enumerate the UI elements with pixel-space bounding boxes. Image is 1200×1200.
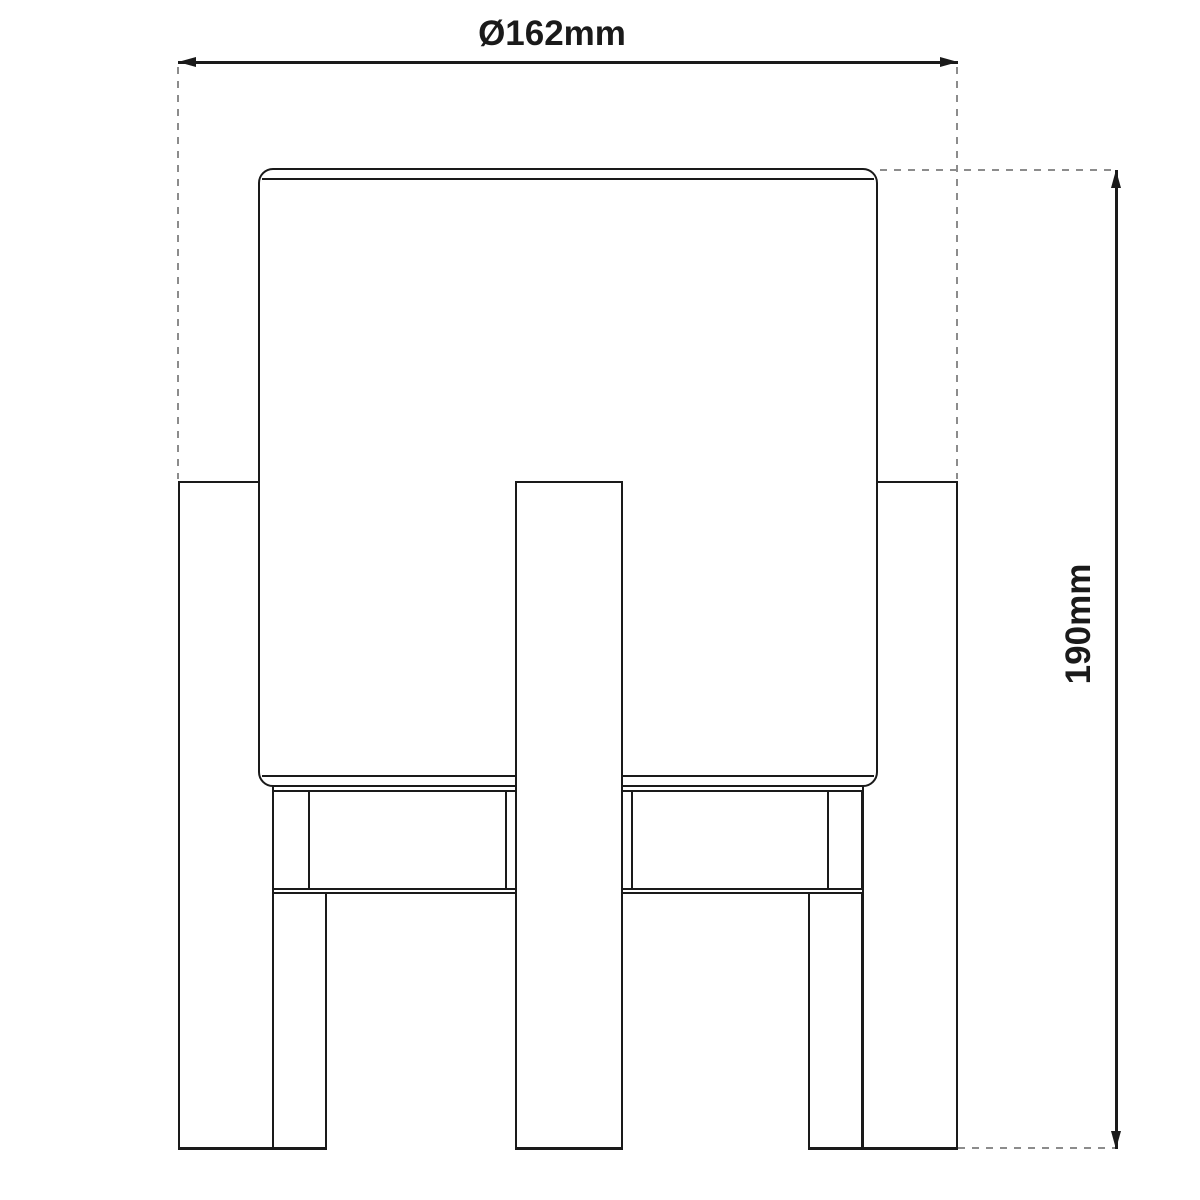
height-dimension-line: [1115, 170, 1118, 1149]
front-right-leg: [808, 892, 863, 1150]
center-leg: [515, 481, 623, 1150]
drawing-canvas: Ø162mm 190mm: [0, 0, 1200, 1200]
extension-line-top-right: [880, 169, 1117, 171]
right-rail-end-line: [827, 792, 829, 888]
diameter-dimension-label: Ø162mm: [427, 16, 677, 51]
left-rail-inner-line: [505, 792, 507, 888]
arrow-left-icon: [178, 57, 196, 67]
front-left-leg: [272, 892, 327, 1150]
arrow-right-icon: [940, 57, 958, 67]
extension-line-right: [956, 67, 958, 479]
extension-line-bottom-right: [958, 1147, 1117, 1149]
height-dimension-label: 190mm: [1061, 524, 1097, 724]
arrow-up-icon: [1111, 170, 1121, 188]
arrow-down-icon: [1111, 1131, 1121, 1149]
right-rail-inner-line: [631, 792, 633, 888]
shade-top-rim-line: [262, 178, 874, 180]
width-dimension-line: [178, 61, 958, 64]
extension-line-left: [177, 67, 179, 479]
left-rail-end-line: [308, 792, 310, 888]
